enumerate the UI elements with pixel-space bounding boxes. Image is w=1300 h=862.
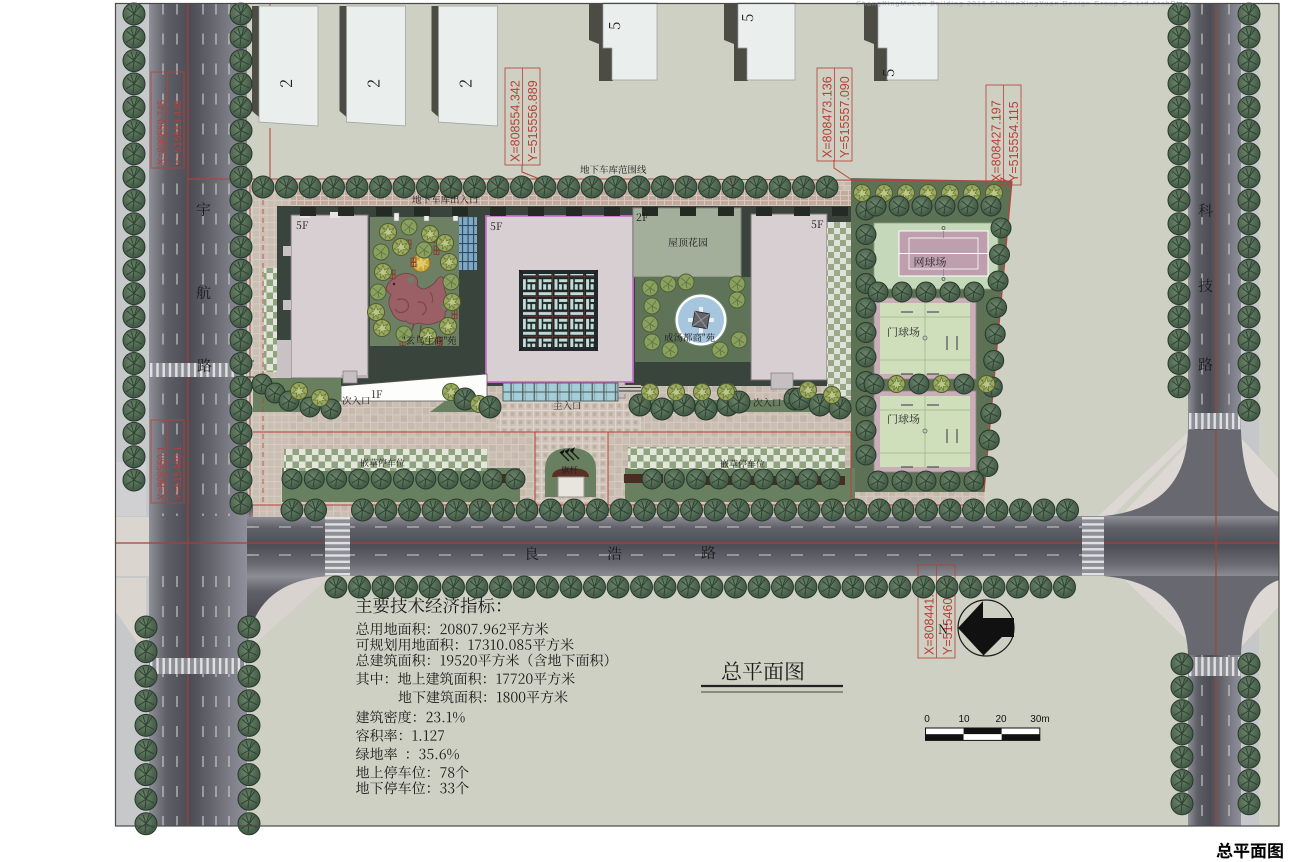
svg-text:X=808550.745: X=808550.745 (156, 99, 167, 165)
svg-text:30m: 30m (1030, 714, 1049, 725)
svg-text:X=808473.136: X=808473.136 (820, 76, 834, 158)
svg-text:Y=515557.090: Y=515557.090 (838, 76, 852, 158)
svg-text:Y=515556.445: Y=515556.445 (173, 99, 184, 165)
svg-text:Y=515554.115: Y=515554.115 (1007, 101, 1021, 182)
svg-text:X=808554.342: X=808554.342 (508, 80, 522, 162)
svg-text:X=808427.197: X=808427.197 (989, 100, 1003, 182)
svg-text:X=808550.1: X=808550.1 (156, 445, 167, 500)
svg-text:0: 0 (924, 714, 930, 725)
svg-text:20: 20 (995, 714, 1007, 725)
svg-text:10: 10 (958, 714, 970, 725)
svg-text:Y=515460.1: Y=515460.1 (173, 445, 184, 500)
svg-text:Y=515556.889: Y=515556.889 (526, 80, 540, 162)
